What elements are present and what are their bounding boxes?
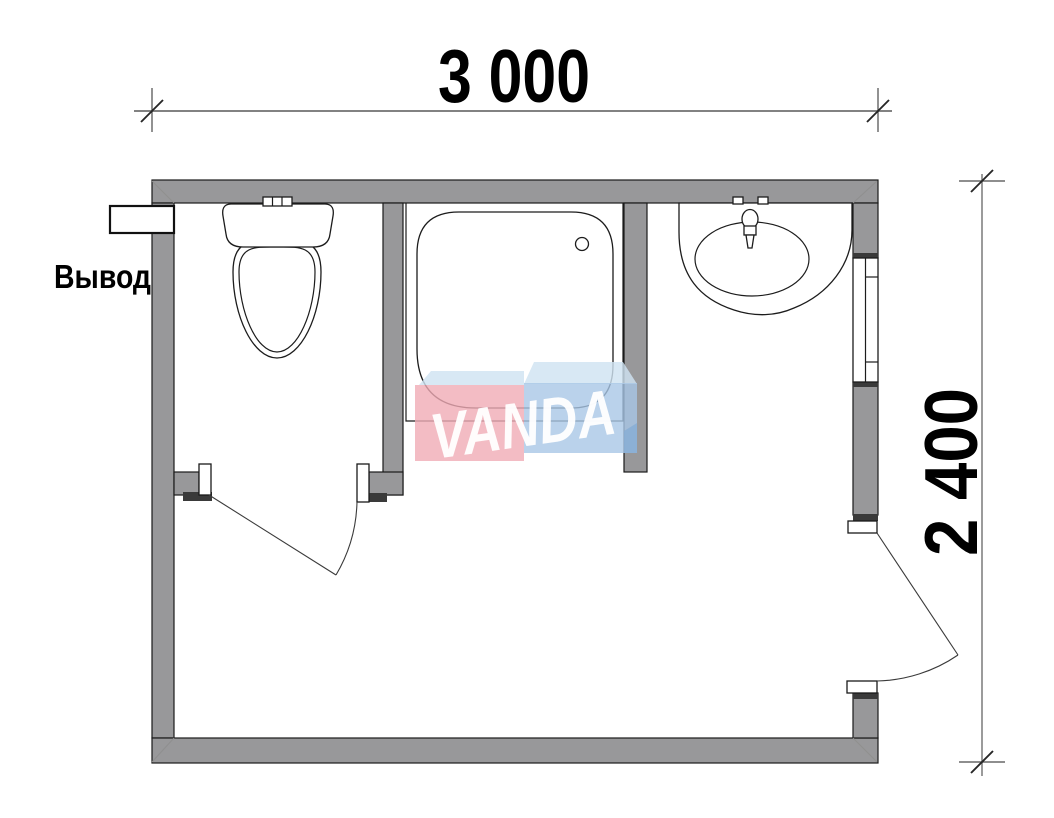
wall-stub-wc-door-left bbox=[174, 472, 199, 495]
faucet-body bbox=[744, 226, 756, 235]
dimension-width: 3 000 bbox=[134, 34, 892, 132]
window bbox=[853, 258, 878, 382]
toilet-tank bbox=[223, 204, 334, 247]
faucet-spout bbox=[746, 235, 754, 248]
cap-window-bottom bbox=[853, 382, 878, 387]
wall-left bbox=[152, 203, 174, 738]
entrance-door-jamb-bottom bbox=[847, 681, 877, 693]
wc-door-jamb-right bbox=[357, 464, 369, 502]
toilet bbox=[223, 197, 334, 358]
washbasin-rim bbox=[679, 203, 852, 315]
wall-right-below-door bbox=[853, 693, 878, 738]
sink-mount-tab-right bbox=[758, 197, 768, 204]
sink-mount-tab-left bbox=[733, 197, 743, 204]
watermark-lid-left bbox=[419, 371, 524, 385]
dimension-height: 2 400 bbox=[909, 170, 1005, 776]
wc-door-swing-arc bbox=[336, 502, 357, 575]
shower-drain bbox=[576, 238, 589, 251]
wall-right-above-window bbox=[853, 203, 878, 258]
toilet-bowl-outer bbox=[233, 241, 321, 358]
cap-door-bottom bbox=[853, 693, 878, 699]
outlet-label: Вывод bbox=[54, 258, 151, 295]
wc-door-leaf bbox=[209, 495, 336, 575]
dimension-height-label: 2 400 bbox=[909, 388, 993, 556]
entrance-door-swing-arc bbox=[877, 655, 958, 681]
cap-window-top bbox=[853, 253, 878, 258]
wc-door bbox=[199, 464, 369, 575]
wall-right-between-window-door bbox=[853, 382, 878, 515]
wall-bottom bbox=[152, 738, 878, 763]
partition-wc-shower bbox=[383, 203, 403, 495]
wall-top bbox=[152, 180, 878, 203]
washbasin bbox=[679, 197, 852, 315]
floor-plan-canvas: VANDA 3 000 2 400 Вывод bbox=[0, 0, 1054, 818]
dimension-width-label: 3 000 bbox=[438, 34, 590, 118]
toilet-flush-buttons bbox=[263, 197, 292, 206]
cap-door-top bbox=[853, 514, 878, 521]
wc-door-jamb-left bbox=[199, 464, 211, 495]
wall-stub-wc-door-right bbox=[369, 472, 403, 495]
outlet-pipe bbox=[110, 206, 174, 233]
entrance-door-jamb-top bbox=[848, 521, 877, 533]
floor-plan-drawing: VANDA 3 000 2 400 Вывод bbox=[0, 0, 1054, 818]
